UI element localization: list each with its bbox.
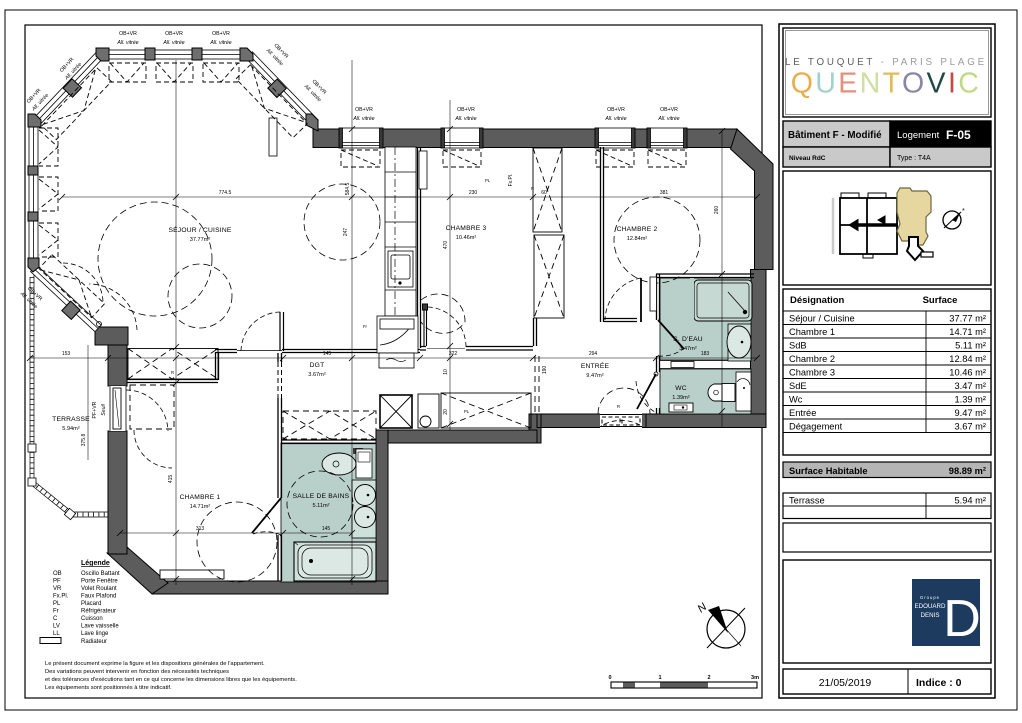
svg-text:SALLE DE BAINS: SALLE DE BAINS bbox=[293, 493, 350, 500]
svg-text:20: 20 bbox=[443, 409, 449, 415]
svg-text:470: 470 bbox=[443, 241, 449, 250]
svg-text:Fr: Fr bbox=[363, 324, 368, 329]
svg-text:230: 230 bbox=[469, 190, 478, 196]
svg-text:3.47 m²: 3.47 m² bbox=[954, 381, 986, 391]
svg-text:OB: OB bbox=[53, 571, 62, 577]
svg-text:190: 190 bbox=[542, 366, 548, 375]
svg-text:Fx.Pl.: Fx.Pl. bbox=[508, 174, 514, 187]
svg-text:Le présent document exprime la: Le présent document exprime la figure et… bbox=[45, 661, 265, 667]
svg-text:3.67m²: 3.67m² bbox=[308, 372, 326, 378]
svg-text:All. vitrée: All. vitrée bbox=[352, 116, 374, 122]
svg-text:All. vitrée: All. vitrée bbox=[116, 40, 138, 46]
svg-text:37.77m²: 37.77m² bbox=[190, 237, 211, 243]
svg-text:381: 381 bbox=[660, 190, 669, 196]
svg-text:CHAMBRE 2: CHAMBRE 2 bbox=[617, 226, 658, 233]
svg-text:3.67 m²: 3.67 m² bbox=[954, 422, 986, 432]
svg-text:PL: PL bbox=[53, 601, 61, 607]
svg-text:0: 0 bbox=[608, 675, 611, 681]
svg-text:EDOUARD: EDOUARD bbox=[915, 603, 946, 610]
svg-text:Chambre 3: Chambre 3 bbox=[789, 368, 835, 378]
svg-text:SdB: SdB bbox=[789, 341, 807, 351]
svg-text:*: * bbox=[962, 208, 965, 215]
svg-text:OB+VR: OB+VR bbox=[165, 31, 183, 37]
svg-text:D: D bbox=[943, 590, 981, 648]
svg-text:Porte Fenêtre: Porte Fenêtre bbox=[81, 579, 118, 585]
svg-text:1.39 m²: 1.39 m² bbox=[954, 395, 986, 405]
svg-text:313: 313 bbox=[196, 526, 205, 532]
svg-text:Faux Plafond: Faux Plafond bbox=[81, 594, 116, 600]
svg-text:5.11 m²: 5.11 m² bbox=[955, 341, 986, 351]
svg-text:Wc: Wc bbox=[789, 395, 803, 405]
svg-text:Niveau RdC: Niveau RdC bbox=[789, 155, 826, 162]
svg-text:All. vitrée: All. vitrée bbox=[657, 116, 679, 122]
svg-text:Surface: Surface bbox=[923, 295, 958, 306]
svg-text:Les équipements sont positionn: Les équipements sont positionnés à titre… bbox=[45, 685, 172, 691]
svg-text:PF: PF bbox=[53, 579, 61, 585]
svg-text:SdE: SdE bbox=[789, 381, 807, 391]
svg-text:Fr: Fr bbox=[53, 609, 59, 615]
svg-text:F-05: F-05 bbox=[946, 128, 971, 142]
svg-text:10.46m²: 10.46m² bbox=[456, 235, 477, 241]
svg-text:Chambre 1: Chambre 1 bbox=[789, 327, 835, 337]
svg-text:153: 153 bbox=[62, 351, 71, 357]
svg-text:21/05/2019: 21/05/2019 bbox=[819, 677, 872, 689]
svg-text:R: R bbox=[531, 186, 534, 191]
svg-text:Placard: Placard bbox=[81, 601, 101, 607]
svg-text:375.8: 375.8 bbox=[81, 434, 87, 447]
svg-text:294: 294 bbox=[589, 351, 598, 357]
svg-text:Surface Habitable: Surface Habitable bbox=[789, 466, 868, 476]
svg-text:37.77 m²: 37.77 m² bbox=[949, 314, 986, 324]
svg-text:Seuil: Seuil bbox=[101, 403, 107, 415]
svg-text:10.46 m²: 10.46 m² bbox=[949, 368, 986, 378]
svg-text:260: 260 bbox=[714, 206, 720, 215]
svg-text:All. vitrée: All. vitrée bbox=[162, 40, 184, 46]
svg-text:PL: PL bbox=[485, 178, 491, 183]
svg-text:12.84m²: 12.84m² bbox=[627, 236, 648, 242]
svg-text:OB+VR: OB+VR bbox=[212, 31, 230, 37]
svg-text:CHAMBRE 1: CHAMBRE 1 bbox=[180, 494, 221, 501]
svg-text:LE TOUQUET - PARIS PLAGE: LE TOUQUET - PARIS PLAGE bbox=[785, 57, 987, 68]
svg-text:All. vitrée: All. vitrée bbox=[454, 116, 476, 122]
svg-text:14.71m²: 14.71m² bbox=[190, 504, 211, 510]
svg-text:5.11m²: 5.11m² bbox=[313, 503, 330, 509]
svg-text:R: R bbox=[171, 370, 174, 375]
svg-text:Indice : 0: Indice : 0 bbox=[916, 677, 962, 689]
svg-text:1: 1 bbox=[658, 675, 661, 681]
svg-text:OB+VR: OB+VR bbox=[119, 31, 137, 37]
svg-text:Lave vaisselle: Lave vaisselle bbox=[81, 624, 119, 630]
svg-text:Volet Roulant: Volet Roulant bbox=[81, 586, 117, 592]
svg-text:2: 2 bbox=[707, 675, 710, 681]
svg-text:Entrée: Entrée bbox=[789, 408, 816, 418]
svg-text:Lave linge: Lave linge bbox=[81, 631, 109, 637]
svg-text:Séjour / Cuisine: Séjour / Cuisine bbox=[789, 314, 855, 324]
svg-text:DENIS: DENIS bbox=[921, 612, 940, 619]
svg-text:PL: PL bbox=[464, 409, 470, 414]
svg-text:60: 60 bbox=[541, 190, 547, 196]
svg-text:OB+VR: OB+VR bbox=[457, 107, 475, 113]
svg-text:C: C bbox=[53, 616, 58, 622]
svg-text:Réfrigérateur: Réfrigérateur bbox=[81, 609, 116, 615]
svg-text:Groupe: Groupe bbox=[920, 595, 940, 600]
svg-text:TERRASSE: TERRASSE bbox=[52, 416, 90, 423]
svg-text:Logement: Logement bbox=[897, 130, 940, 141]
svg-text:322: 322 bbox=[449, 351, 458, 357]
svg-text:1.39m²: 1.39m² bbox=[672, 395, 690, 401]
svg-text:Dégagement: Dégagement bbox=[789, 422, 843, 432]
svg-text:CHAMBRE 3: CHAMBRE 3 bbox=[446, 225, 487, 232]
svg-text:S. D'EAU: S. D'EAU bbox=[673, 336, 703, 343]
svg-text:3m: 3m bbox=[751, 675, 759, 681]
svg-text:R: R bbox=[617, 404, 620, 409]
svg-text:Fx.Pl.: Fx.Pl. bbox=[53, 594, 69, 600]
svg-text:12.84 m²: 12.84 m² bbox=[949, 354, 986, 364]
svg-text:LV: LV bbox=[53, 624, 60, 630]
svg-text:Cuisson: Cuisson bbox=[81, 616, 103, 622]
svg-text:247: 247 bbox=[343, 228, 349, 237]
svg-text:PF+VR: PF+VR bbox=[92, 401, 98, 418]
svg-text:9.47 m²: 9.47 m² bbox=[954, 408, 986, 418]
svg-text:10: 10 bbox=[443, 369, 449, 375]
svg-text:9.47m²: 9.47m² bbox=[586, 373, 604, 379]
svg-text:Oscillo Battant: Oscillo Battant bbox=[81, 571, 120, 577]
svg-text:Des variations peuvent interve: Des variations peuvent intervenir en fon… bbox=[45, 669, 229, 675]
svg-text:Désignation: Désignation bbox=[790, 295, 845, 306]
svg-text:145: 145 bbox=[322, 526, 331, 532]
svg-text:774.5: 774.5 bbox=[219, 190, 232, 196]
svg-text:Légende: Légende bbox=[81, 560, 110, 567]
svg-text:14.71 m²: 14.71 m² bbox=[949, 327, 986, 337]
svg-text:Type : T4A: Type : T4A bbox=[897, 155, 931, 162]
svg-text:ENTRÉE: ENTRÉE bbox=[581, 361, 610, 370]
svg-text:98.89 m²: 98.89 m² bbox=[949, 466, 986, 476]
svg-text:All. vitrée: All. vitrée bbox=[209, 40, 231, 46]
svg-text:3.47m²: 3.47m² bbox=[679, 346, 697, 352]
svg-text:584.5: 584.5 bbox=[345, 183, 351, 196]
svg-text:415: 415 bbox=[168, 475, 174, 484]
svg-text:Chambre 2: Chambre 2 bbox=[789, 354, 835, 364]
svg-text:183: 183 bbox=[701, 351, 710, 357]
svg-text:OB+VR: OB+VR bbox=[607, 107, 625, 113]
svg-text:OB+VR: OB+VR bbox=[660, 107, 678, 113]
svg-text:OB+VR: OB+VR bbox=[355, 107, 373, 113]
svg-text:VR: VR bbox=[53, 586, 62, 592]
svg-text:5.94m²: 5.94m² bbox=[62, 426, 80, 432]
svg-text:Terrasse: Terrasse bbox=[789, 496, 825, 506]
svg-text:LL: LL bbox=[53, 631, 60, 637]
svg-text:WC: WC bbox=[675, 385, 687, 392]
svg-text:SÉJOUR / CUISINE: SÉJOUR / CUISINE bbox=[168, 225, 231, 234]
svg-text:Bâtiment F - Modifié: Bâtiment F - Modifié bbox=[788, 130, 882, 141]
svg-text:All. vitrée: All. vitrée bbox=[604, 116, 626, 122]
svg-text:Radiateur: Radiateur bbox=[81, 639, 107, 645]
svg-text:et des tolérances d'exécutions: et des tolérances d'exécutions tant en c… bbox=[45, 677, 297, 683]
svg-text:5.94 m²: 5.94 m² bbox=[954, 496, 986, 506]
svg-text:QUENTOVIC: QUENTOVIC bbox=[791, 68, 982, 100]
svg-text:DGT: DGT bbox=[310, 362, 325, 369]
svg-text:145: 145 bbox=[323, 351, 332, 357]
